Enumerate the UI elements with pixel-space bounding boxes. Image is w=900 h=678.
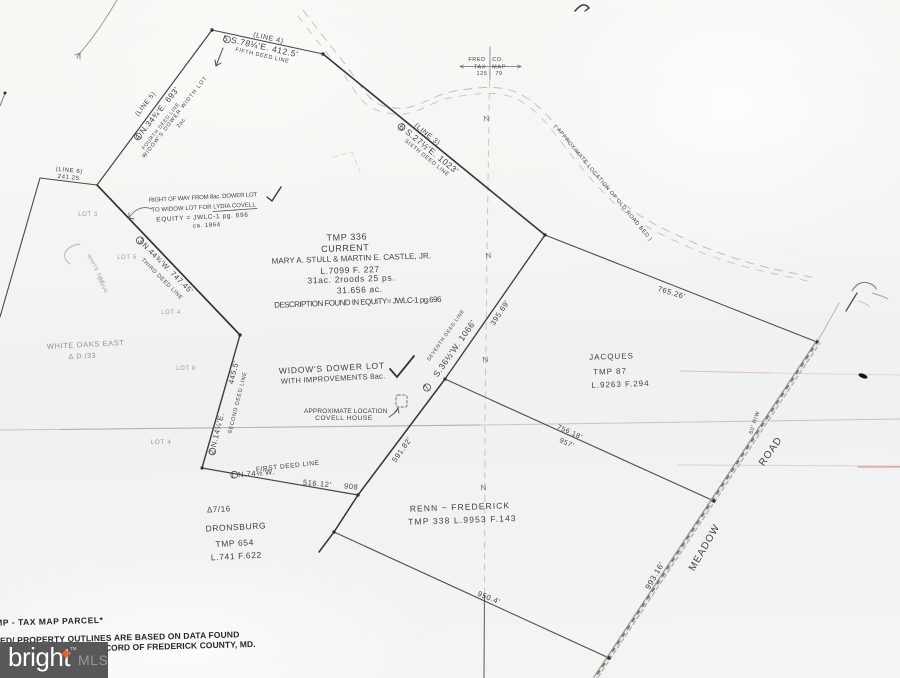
svg-text:TMP 654: TMP 654 xyxy=(215,537,254,549)
svg-text:L.9263 F.294: L.9263 F.294 xyxy=(591,379,650,390)
svg-text:765.26': 765.26' xyxy=(657,284,687,301)
svg-text:TMP 336: TMP 336 xyxy=(326,231,367,242)
svg-text:N: N xyxy=(485,251,493,261)
svg-text:TM: TM xyxy=(70,646,77,651)
svg-text:LOT 4: LOT 4 xyxy=(151,439,172,446)
svg-text:MARY A. STULL & MARTIN E. CAST: MARY A. STULL & MARTIN E. CASTLE, JR. xyxy=(271,251,431,266)
svg-text:DRIVE: DRIVE xyxy=(95,276,109,295)
svg-text:bright: bright xyxy=(8,642,71,672)
svg-text:Δ.D./33: Δ.D./33 xyxy=(68,352,96,360)
svg-text:ca. 1864: ca. 1864 xyxy=(193,222,221,229)
svg-text:LOT 8: LOT 8 xyxy=(176,366,196,372)
svg-text:EQUITY = JWLC-1 pg. 696: EQUITY = JWLC-1 pg. 696 xyxy=(156,212,249,224)
svg-text:DESCRIPTION FOUND IN EQUITY= J: DESCRIPTION FOUND IN EQUITY= JWLC-1 pg.6… xyxy=(274,295,442,310)
svg-text:Δ7/16: Δ7/16 xyxy=(207,504,231,514)
svg-text:957': 957' xyxy=(558,437,575,450)
svg-text:N: N xyxy=(480,483,488,493)
svg-text:31.656 ac.: 31.656 ac. xyxy=(337,284,383,296)
svg-text:( APPROXIMATE LOCATION OF OLD: ( APPROXIMATE LOCATION OF OLD ROAD BED ) xyxy=(552,124,653,243)
svg-text:LOT 4: LOT 4 xyxy=(161,310,181,316)
svg-text:TAX: TAX xyxy=(474,65,486,71)
svg-text:125: 125 xyxy=(477,71,488,77)
svg-text:FRED: FRED xyxy=(468,57,485,63)
svg-text:CURRENT: CURRENT xyxy=(321,242,370,254)
svg-text:908: 908 xyxy=(344,481,359,491)
svg-text:TMP 87: TMP 87 xyxy=(593,367,627,377)
svg-text:445.5': 445.5' xyxy=(226,360,240,385)
svg-text:DRONSBURG: DRONSBURG xyxy=(205,520,266,533)
svg-text:6 S.27½'E. 1023': 6 S.27½'E. 1023' xyxy=(397,122,461,176)
svg-text:TMP 338 L.9953 F.143: TMP 338 L.9953 F.143 xyxy=(408,513,516,527)
svg-text:LOT 5: LOT 5 xyxy=(117,255,137,261)
svg-text:APPROXIMATE LOCATION: APPROXIMATE LOCATION xyxy=(304,408,388,415)
svg-text:COVELL HOUSE: COVELL HOUSE xyxy=(315,415,373,422)
svg-text:L.741 F.622: L.741 F.622 xyxy=(211,550,262,563)
svg-text:CO.: CO. xyxy=(492,57,504,63)
svg-text:516.12': 516.12' xyxy=(303,478,332,489)
svg-text:N: N xyxy=(482,355,490,365)
svg-text:TMP - TAX MAP PARCEL*: TMP - TAX MAP PARCEL* xyxy=(0,615,104,628)
svg-text:LOT 3: LOT 3 xyxy=(78,212,98,218)
svg-text:591.82': 591.82' xyxy=(390,435,414,464)
svg-text:JACQUES: JACQUES xyxy=(589,351,634,362)
svg-text:79: 79 xyxy=(495,71,502,77)
svg-text:950.4': 950.4' xyxy=(476,589,501,606)
svg-text:N: N xyxy=(483,114,491,124)
svg-text:RENN ~ FREDERICK: RENN ~ FREDERICK xyxy=(410,500,510,513)
svg-text:1 N.74½'W.: 1 N.74½'W. xyxy=(230,467,275,480)
svg-text:WHITE OAKS EAST: WHITE OAKS EAST xyxy=(47,338,125,351)
svg-text:MLS: MLS xyxy=(78,652,108,668)
svg-text:MAP: MAP xyxy=(492,65,506,71)
svg-text:ROAD: ROAD xyxy=(757,435,785,468)
